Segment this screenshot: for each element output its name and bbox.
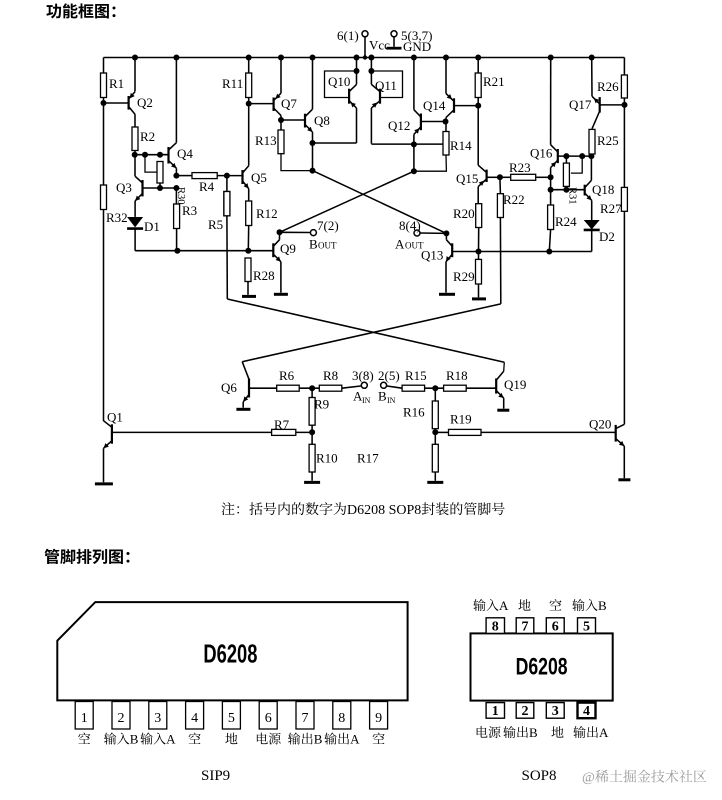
svg-text:6(1): 6(1) <box>337 28 359 43</box>
svg-text:R2: R2 <box>140 129 155 144</box>
svg-text:Q15: Q15 <box>456 171 478 186</box>
svg-text:2: 2 <box>522 704 529 719</box>
svg-text:B: B <box>309 237 318 252</box>
svg-text:R24: R24 <box>555 214 577 229</box>
svg-text:R28: R28 <box>253 268 275 283</box>
svg-text:3: 3 <box>552 704 559 719</box>
svg-text:A: A <box>166 732 176 747</box>
svg-text:R32: R32 <box>106 210 128 225</box>
svg-text:8: 8 <box>492 619 499 634</box>
svg-text:R3: R3 <box>182 203 197 218</box>
svg-text:D6208 SOP8: D6208 SOP8 <box>347 503 421 518</box>
svg-text:R16: R16 <box>403 405 425 420</box>
svg-text:R10: R10 <box>316 451 338 466</box>
svg-text:R18: R18 <box>446 368 468 383</box>
svg-text:Q7: Q7 <box>281 96 297 111</box>
svg-text:A: A <box>395 237 405 252</box>
svg-text:@: @ <box>582 771 595 786</box>
svg-text:2: 2 <box>118 711 125 726</box>
svg-text:R17: R17 <box>357 451 379 466</box>
svg-text:R14: R14 <box>450 138 472 153</box>
svg-text:R1: R1 <box>109 76 124 91</box>
svg-text:7: 7 <box>302 711 309 726</box>
svg-text:R29: R29 <box>453 269 475 284</box>
svg-text:7: 7 <box>522 619 529 634</box>
svg-text:R11: R11 <box>222 76 243 91</box>
svg-text:Q1: Q1 <box>107 410 123 425</box>
svg-text:Q11: Q11 <box>375 78 397 93</box>
svg-text:R21: R21 <box>483 74 505 89</box>
svg-text:5: 5 <box>228 711 235 726</box>
svg-text:R20: R20 <box>453 206 475 221</box>
svg-text:3(8): 3(8) <box>352 368 374 383</box>
svg-text:R22: R22 <box>503 192 525 207</box>
svg-text:D2: D2 <box>599 229 615 244</box>
svg-text:A: A <box>599 725 609 740</box>
svg-text:3: 3 <box>154 711 161 726</box>
svg-text:4: 4 <box>191 711 198 726</box>
svg-text:D6208: D6208 <box>203 639 257 669</box>
svg-text:5: 5 <box>583 619 590 634</box>
svg-text:1: 1 <box>492 704 499 719</box>
svg-text:R23: R23 <box>509 160 531 175</box>
svg-text:Q17: Q17 <box>569 97 592 112</box>
svg-text:6: 6 <box>552 619 559 634</box>
svg-text:IN: IN <box>387 396 396 405</box>
svg-text:R15: R15 <box>405 368 427 383</box>
svg-text:Q13: Q13 <box>421 248 443 263</box>
svg-text:R9: R9 <box>314 397 329 412</box>
svg-text:B: B <box>130 732 139 747</box>
svg-text:Q18: Q18 <box>592 182 614 197</box>
svg-text:Q9: Q9 <box>280 241 296 256</box>
svg-text:B: B <box>378 389 387 404</box>
svg-text:B: B <box>314 732 323 747</box>
svg-text:R13: R13 <box>255 133 277 148</box>
svg-text:Q3: Q3 <box>116 180 132 195</box>
svg-text:R25: R25 <box>597 133 619 148</box>
svg-text:D1: D1 <box>144 219 160 234</box>
svg-text:R26: R26 <box>597 79 619 94</box>
svg-text:R7: R7 <box>274 417 290 432</box>
svg-text:B: B <box>529 725 538 740</box>
svg-text:Vcc: Vcc <box>369 38 390 53</box>
svg-text:A: A <box>350 732 360 747</box>
svg-text:9: 9 <box>375 711 382 726</box>
svg-text:OUT: OUT <box>318 241 337 251</box>
svg-text:GND: GND <box>403 39 431 54</box>
svg-text:R8: R8 <box>323 368 338 383</box>
svg-text:R19: R19 <box>450 412 472 427</box>
svg-text:IN: IN <box>362 396 371 405</box>
svg-text:R5: R5 <box>208 217 223 232</box>
svg-text:SOP8: SOP8 <box>522 768 557 784</box>
svg-text:1: 1 <box>81 711 88 726</box>
svg-text:SIP9: SIP9 <box>201 768 230 784</box>
svg-text:R27: R27 <box>600 201 622 216</box>
svg-text:Q14: Q14 <box>423 98 446 113</box>
svg-text:Q20: Q20 <box>589 417 611 432</box>
svg-text:Q5: Q5 <box>251 170 267 185</box>
svg-text:Q16: Q16 <box>530 146 553 161</box>
svg-text:6: 6 <box>265 711 272 726</box>
svg-text:2(5): 2(5) <box>378 368 400 383</box>
svg-text:Q19: Q19 <box>504 377 526 392</box>
svg-text:Q10: Q10 <box>328 74 350 89</box>
svg-text:Q4: Q4 <box>177 146 193 161</box>
svg-text:8: 8 <box>338 711 345 726</box>
svg-text:D6208: D6208 <box>516 654 568 681</box>
svg-text:7(2): 7(2) <box>317 218 339 233</box>
svg-text:R12: R12 <box>256 206 278 221</box>
svg-text:Q2: Q2 <box>137 95 153 110</box>
svg-text:Q12: Q12 <box>388 118 410 133</box>
svg-text:R4: R4 <box>199 179 215 194</box>
svg-text:Q6: Q6 <box>221 380 237 395</box>
svg-text:B: B <box>598 598 607 613</box>
svg-text:R6: R6 <box>279 368 295 383</box>
svg-text:Q8: Q8 <box>314 113 330 128</box>
svg-text:A: A <box>499 598 509 613</box>
svg-text:4: 4 <box>583 704 590 719</box>
